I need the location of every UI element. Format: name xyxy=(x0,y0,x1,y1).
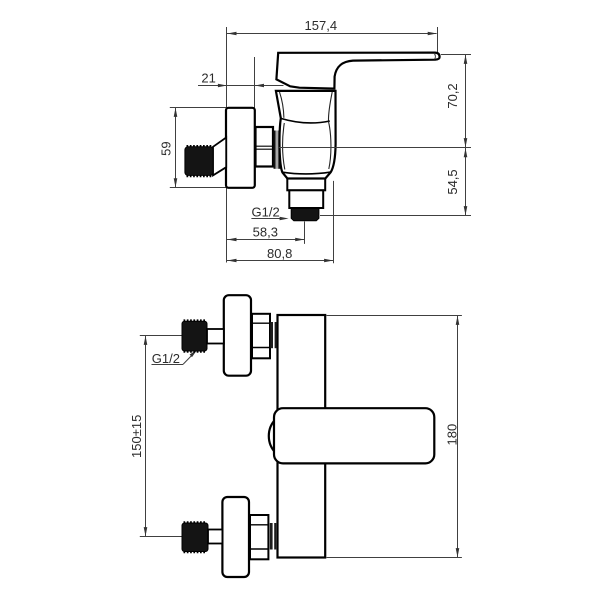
svg-text:G1/2: G1/2 xyxy=(252,205,280,220)
svg-text:80,8: 80,8 xyxy=(267,246,292,261)
svg-text:70,2: 70,2 xyxy=(445,83,460,108)
svg-text:58,3: 58,3 xyxy=(253,224,278,239)
svg-text:G1/2: G1/2 xyxy=(152,351,180,366)
svg-text:54,5: 54,5 xyxy=(445,169,460,194)
svg-text:21: 21 xyxy=(201,70,215,85)
svg-text:59: 59 xyxy=(159,141,174,155)
svg-text:157,4: 157,4 xyxy=(305,18,338,33)
svg-text:150±15: 150±15 xyxy=(129,415,144,458)
svg-text:180: 180 xyxy=(444,424,459,446)
